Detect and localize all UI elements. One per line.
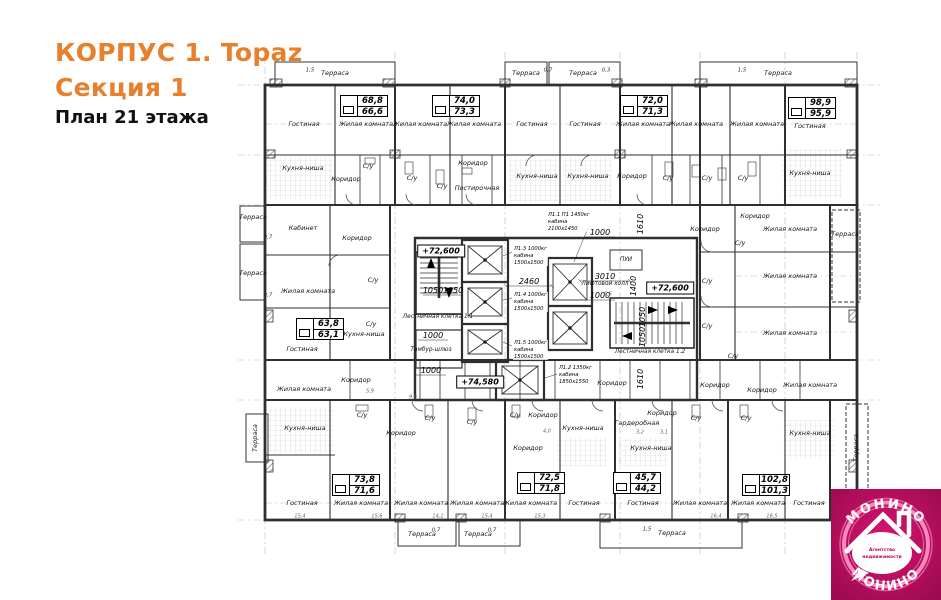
area-table: 98,995,9: [788, 97, 836, 119]
dimension-label: 2460: [519, 278, 539, 286]
room-label: Жилая комната: [503, 500, 557, 507]
room-label: Жилая комната: [763, 226, 817, 233]
room-label: Жилая комната: [393, 121, 447, 128]
dimension-label: 1050: [639, 307, 647, 327]
room-label: Гостиная: [286, 500, 317, 507]
room-label: Кухня-ниша: [562, 425, 603, 432]
dimension-label: 1050: [423, 287, 443, 295]
room-label: Гардеробная: [615, 420, 659, 427]
vestibule-label: Тамбур-шлюз: [410, 348, 451, 354]
dimension-label: 1610: [637, 214, 645, 234]
room-label: Кабинет: [289, 225, 318, 232]
monino-logo: МОНИНО МОНИНО Агентство недвижимости: [831, 489, 941, 600]
dimension-label: 0,3: [602, 68, 611, 74]
room-label: Терраса: [831, 231, 859, 238]
dimension-label: 1050: [443, 287, 463, 295]
room-label: Коридор: [617, 173, 647, 180]
room-label: Коридор: [647, 410, 677, 417]
dimension-label: 5,9: [366, 390, 374, 395]
room-label: С/у: [368, 277, 379, 284]
dimension-label: 9,9: [409, 396, 417, 401]
logo-tagline: недвижимости: [862, 555, 901, 560]
room-label: С/у: [702, 175, 713, 182]
room-label: С/у: [357, 412, 368, 419]
dimension-label: 16,4: [710, 515, 721, 520]
room-label: С/у: [702, 278, 713, 285]
room-label: Гостиная: [793, 500, 824, 507]
room-label: С/у: [663, 175, 674, 182]
room-label: Жилая комната: [763, 330, 817, 337]
room-label: Коридор: [700, 382, 730, 389]
area-table: 72,071,3: [620, 95, 668, 117]
room-label: С/у: [738, 175, 749, 182]
elevator-label: Л1.4 1000кгкабина1500х1500: [513, 292, 548, 312]
section-title: Секция 1: [55, 71, 303, 106]
room-label: Гостиная: [569, 121, 600, 128]
room-label: Гостиная: [516, 121, 547, 128]
room-label: Коридор: [513, 445, 543, 452]
dimension-label: 1,5: [306, 68, 315, 74]
elevator-label: Л1.5 1000кгкабина1500х1500: [513, 340, 548, 360]
dimension-label: 14,1: [432, 515, 443, 520]
staircase-2: [610, 298, 694, 348]
dimension-label: 0,7: [544, 68, 553, 74]
elevator-label: Л1.1 П1 1450кгкабина2100х1450: [547, 212, 591, 232]
stair-label: Лестничная клетка 1.1: [403, 315, 473, 321]
room-label: Жилая комната: [669, 121, 723, 128]
level-mark: +74,580: [456, 376, 504, 389]
dimension-label: 0,7: [432, 528, 441, 534]
plan-subtitle: План 21 этажа: [55, 107, 303, 128]
room-label: Жилая комната: [673, 500, 727, 507]
room-label: С/у: [735, 240, 746, 247]
room-label: С/у: [741, 415, 752, 422]
room-label: Коридор: [331, 176, 361, 183]
room-label: Гостиная: [286, 346, 317, 353]
room-label: Жилая комната: [731, 500, 785, 507]
dimension-label: 15,6: [371, 515, 382, 520]
room-label: Коридор: [528, 412, 558, 419]
room-label: С/у: [437, 183, 448, 190]
elevator-label: Л1.3 1000кгкабина1500х1500: [513, 246, 548, 266]
room-label: Коридор: [458, 160, 488, 167]
room-label: Кухня-ниша: [789, 430, 830, 437]
dimension-label: 0,7: [264, 293, 273, 299]
dimension-label: 1050: [639, 327, 647, 347]
logo-tagline: Агентство: [869, 547, 895, 553]
room-label: С/у: [691, 415, 702, 422]
room-label: Гостиная: [627, 500, 658, 507]
room-label: Гостиная: [794, 123, 825, 130]
elevator-shaft-middle: [548, 228, 592, 350]
dimension-label: 1,5: [738, 68, 747, 74]
room-label: Жилая комната: [763, 273, 817, 280]
room-label: Постирочная: [455, 185, 500, 192]
area-table: 63,863,1: [296, 318, 344, 340]
dimension-label: 15,3: [534, 515, 545, 520]
area-table: 68,866,6: [340, 95, 388, 117]
room-label: Жилая комната: [447, 121, 501, 128]
room-label: Жилая комната: [281, 288, 335, 295]
dimension-label: 1000: [590, 229, 610, 237]
dimension-label: 3,2: [636, 431, 644, 436]
room-label: Терраса: [658, 530, 686, 537]
pui-label: ПУИ: [620, 258, 632, 264]
dimension-label: 5,5: [604, 293, 612, 298]
room-label: С/у: [467, 419, 478, 426]
room-label: Коридор: [342, 235, 372, 242]
dimension-label: 3010: [595, 273, 615, 281]
level-mark: +72,600: [417, 245, 465, 258]
room-label: Кухня-ниша: [343, 331, 384, 338]
title-block: КОРПУС 1. Topaz Секция 1 План 21 этажа: [55, 36, 303, 128]
room-label: Терраса: [569, 70, 597, 77]
room-label: Жилая комната: [277, 386, 331, 393]
room-label: Коридор: [597, 380, 627, 387]
stair-label: Лестничная клетка 1.2: [615, 350, 685, 356]
dimension-label: 15,4: [481, 515, 492, 520]
room-label: Терраса: [853, 434, 860, 462]
room-label: Жилая комната: [783, 382, 837, 389]
elevator-shaft-l12: [496, 360, 557, 400]
room-label: Жилая комната: [450, 500, 504, 507]
room-label: Гостиная: [568, 500, 599, 507]
area-table: 45,744,2: [613, 472, 661, 494]
room-label: Кухня-ниша: [567, 173, 608, 180]
elevator-shaft-left: [462, 240, 508, 362]
room-label: Жилая комната: [730, 121, 784, 128]
dimension-label: 4,0: [543, 430, 551, 435]
dimension-label: 1,5: [643, 527, 652, 533]
room-label: Терраса: [239, 270, 267, 277]
elevator-label: Л1.2 1350кгкабина1850х1550: [558, 365, 593, 385]
page-title: КОРПУС 1. Topaz: [55, 36, 303, 71]
room-label: Терраса: [512, 70, 540, 77]
room-label: С/у: [702, 323, 713, 330]
room-label: С/у: [425, 415, 436, 422]
level-mark: +72,600: [646, 282, 694, 295]
room-label: Жилая комната: [339, 121, 393, 128]
room-label: Кухня-ниша: [516, 173, 557, 180]
room-label: Терраса: [321, 70, 349, 77]
floorplan-page: КОРПУС 1. Topaz Секция 1 План 21 этажа Т…: [0, 0, 941, 600]
dimension-label: 16,5: [766, 515, 777, 520]
room-label: С/у: [363, 163, 374, 170]
room-label: Жилая комната: [394, 500, 448, 507]
room-label: Жилая комната: [334, 500, 388, 507]
area-table: 72,571,8: [517, 472, 565, 494]
room-label: Коридор: [740, 213, 770, 220]
dimension-label: 0,7: [264, 235, 273, 241]
area-table: 102,8101,3: [742, 474, 790, 496]
room-label: Кухня-ниша: [630, 445, 671, 452]
room-label: С/у: [407, 175, 418, 182]
room-label: Терраса: [239, 214, 267, 221]
dimension-label: 1000: [421, 367, 441, 375]
area-table: 73,871,6: [332, 474, 380, 496]
room-label: Коридор: [341, 377, 371, 384]
room-label: С/у: [366, 321, 377, 328]
monino-logo-svg: МОНИНО МОНИНО Агентство недвижимости: [831, 489, 941, 600]
room-label: Жилая комната: [616, 121, 670, 128]
room-label: Коридор: [386, 430, 416, 437]
room-label: С/у: [728, 353, 739, 360]
room-label: Терраса: [252, 424, 259, 452]
room-label: Коридор: [747, 387, 777, 394]
room-label: Коридор: [690, 226, 720, 233]
lift-hall-label: Лифтовой холл: [582, 282, 629, 288]
dimension-label: 3,1: [660, 431, 668, 436]
room-label: Кухня-ниша: [789, 170, 830, 177]
dimension-label: 0,7: [488, 528, 497, 534]
area-table: 74,073,3: [432, 95, 480, 117]
room-label: С/у: [510, 412, 521, 419]
dimension-label: 15,4: [294, 515, 305, 520]
room-label: Кухня-ниша: [282, 165, 323, 172]
dimension-label: 1610: [637, 369, 645, 389]
dimension-label: 1400: [630, 276, 638, 296]
room-label: Кухня-ниша: [284, 425, 325, 432]
room-label: Терраса: [764, 70, 792, 77]
dimension-label: 1000: [423, 332, 443, 340]
